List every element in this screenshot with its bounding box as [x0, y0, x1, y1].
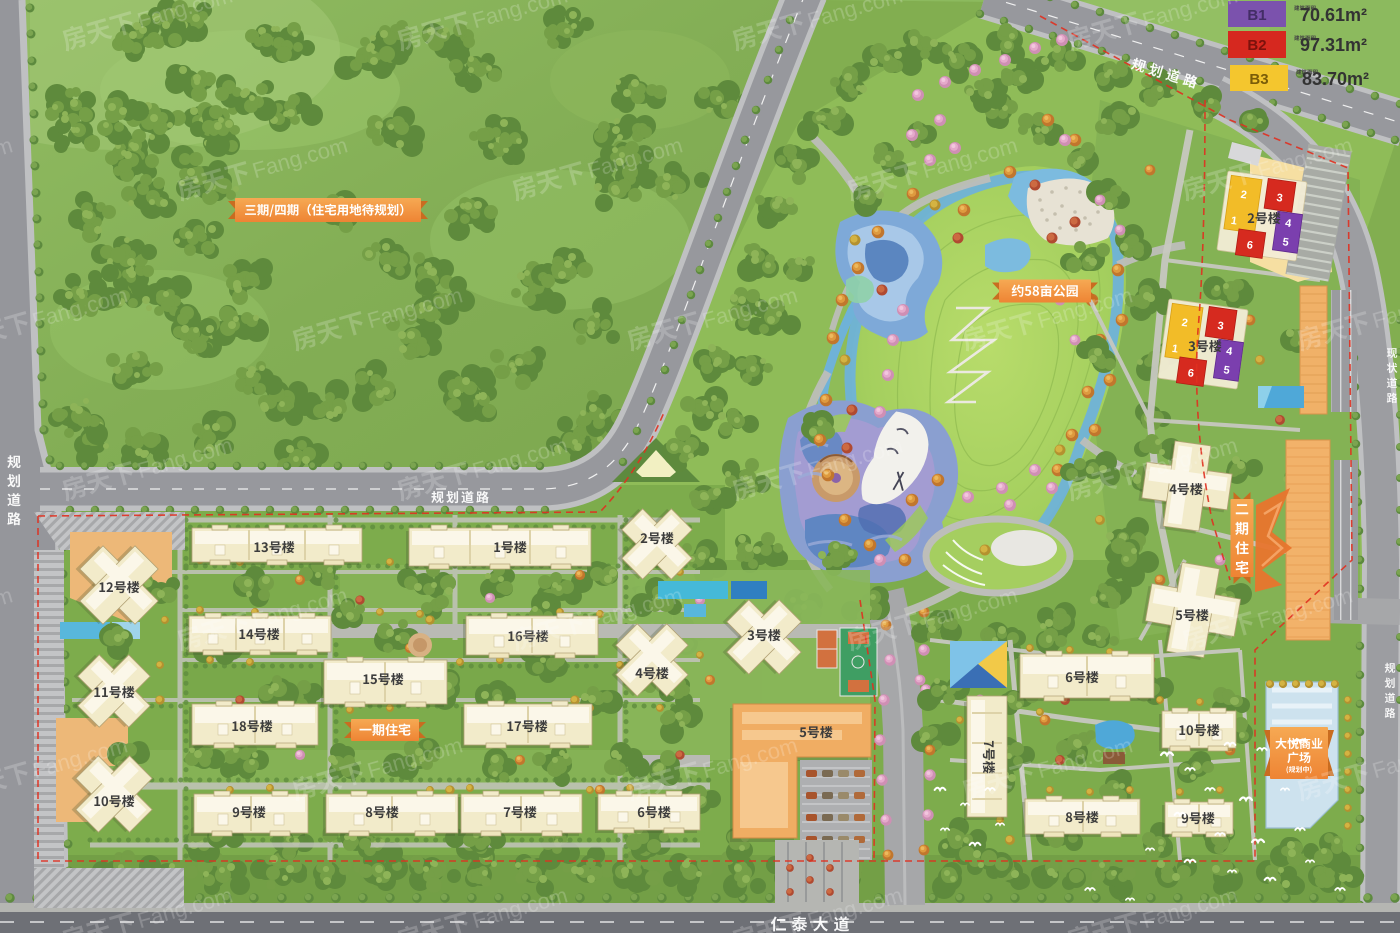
svg-text:97.31m²: 97.31m²: [1300, 35, 1367, 55]
svg-text:83.70m²: 83.70m²: [1302, 69, 1369, 89]
svg-text:B3: B3: [1249, 71, 1268, 88]
svg-text:B2: B2: [1247, 37, 1266, 54]
svg-text:70.61m²: 70.61m²: [1300, 5, 1367, 25]
svg-text:B1: B1: [1247, 7, 1266, 24]
